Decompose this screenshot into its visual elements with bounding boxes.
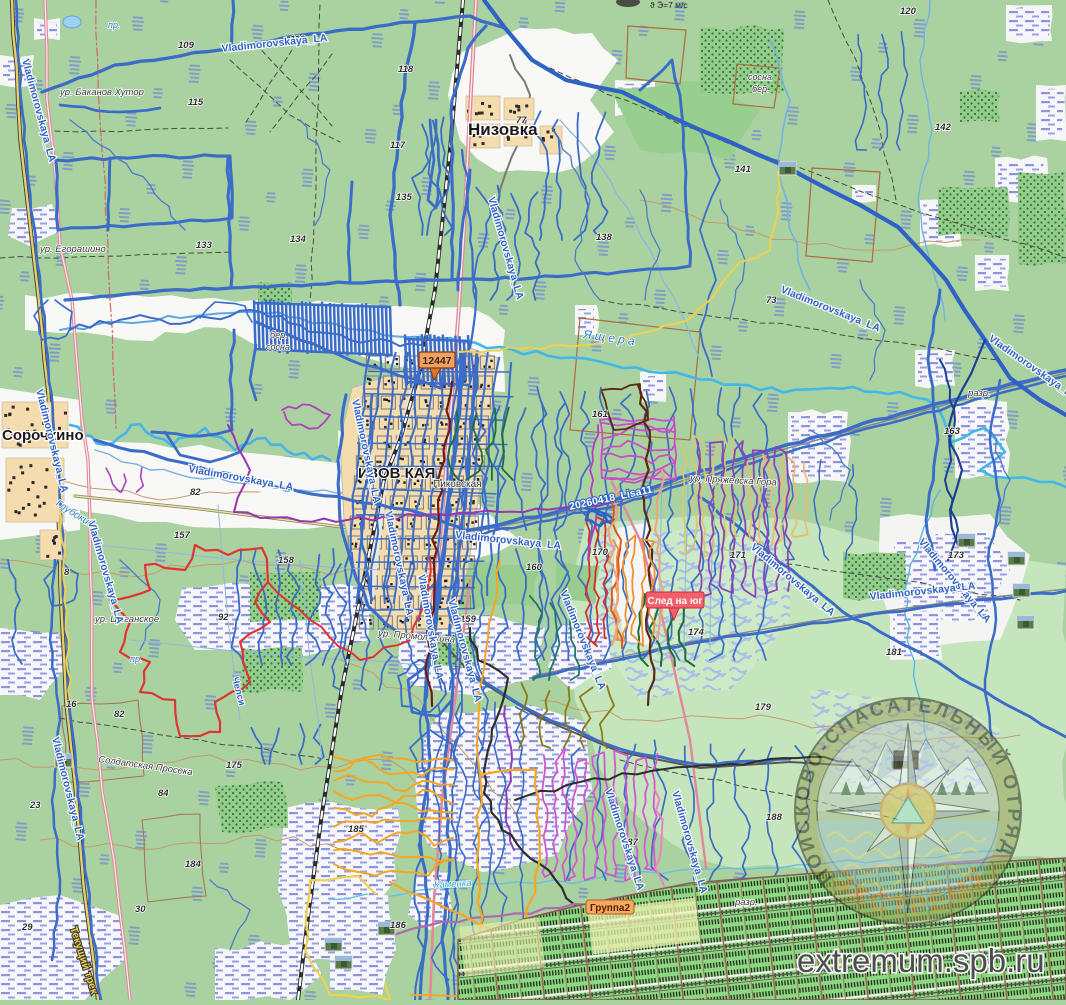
- svg-text:157: 157: [174, 530, 191, 541]
- svg-text:141: 141: [735, 164, 751, 175]
- svg-text:138: 138: [596, 232, 613, 243]
- svg-text:разр.: разр.: [734, 897, 758, 908]
- svg-text:175: 175: [226, 760, 243, 771]
- svg-text:Пиковская: Пиковская: [433, 479, 482, 490]
- svg-text:сосна: сосна: [748, 72, 772, 82]
- svg-text:пр.: пр.: [130, 654, 142, 664]
- svg-text:120: 120: [900, 6, 917, 17]
- svg-text:Каменка: Каменка: [434, 878, 472, 891]
- svg-text:Группа2: Группа2: [590, 903, 630, 914]
- svg-text:16: 16: [66, 699, 77, 710]
- svg-text:161: 161: [592, 409, 608, 420]
- svg-text:184: 184: [185, 859, 202, 870]
- svg-text:170: 170: [592, 547, 609, 558]
- svg-text:разр.: разр.: [967, 388, 991, 399]
- svg-text:92: 92: [218, 612, 229, 623]
- svg-text:пр.: пр.: [108, 20, 120, 30]
- svg-text:8: 8: [64, 567, 70, 578]
- svg-text:179: 179: [755, 702, 772, 713]
- svg-text:ур. Цыганское: ур. Цыганское: [94, 614, 159, 625]
- svg-text:След на юг: След на юг: [647, 596, 702, 607]
- svg-text:82: 82: [190, 487, 201, 498]
- svg-text:171: 171: [730, 550, 746, 561]
- svg-text:Низовка: Низовка: [468, 120, 538, 139]
- svg-text:ϑ Ӭ=7 м/с: ϑ Ӭ=7 м/с: [650, 0, 688, 10]
- svg-text:181: 181: [886, 647, 902, 658]
- svg-text:77: 77: [516, 115, 527, 126]
- svg-text:бер.: бер.: [270, 330, 288, 340]
- svg-text:ур. Егорашино: ур. Егорашино: [39, 244, 106, 255]
- svg-text:188: 188: [766, 812, 783, 823]
- svg-text:23: 23: [29, 800, 41, 811]
- svg-text:109: 109: [178, 40, 195, 51]
- svg-text:186: 186: [390, 920, 407, 931]
- svg-text:158: 158: [278, 555, 295, 566]
- svg-text:160: 160: [526, 562, 543, 573]
- svg-text:133: 133: [196, 240, 213, 251]
- svg-text:ур. Баканов Хутор: ур. Баканов Хутор: [59, 87, 144, 98]
- svg-text:142: 142: [935, 122, 952, 133]
- svg-text:117: 117: [390, 140, 406, 151]
- svg-text:84: 84: [158, 788, 169, 799]
- svg-text:115: 115: [188, 97, 204, 108]
- svg-text:сосна: сосна: [266, 342, 290, 352]
- svg-text:бер.: бер.: [752, 84, 770, 94]
- svg-text:163: 163: [944, 426, 961, 437]
- svg-text:185: 185: [348, 824, 365, 835]
- svg-text:118: 118: [398, 64, 414, 75]
- svg-text:173: 173: [948, 550, 965, 561]
- svg-text:134: 134: [290, 234, 307, 245]
- svg-text:82: 82: [114, 709, 125, 720]
- svg-text:30: 30: [135, 904, 146, 915]
- svg-text:135: 135: [396, 192, 413, 203]
- svg-text:extremum.spb.ru: extremum.spb.ru: [797, 942, 1045, 979]
- svg-text:174: 174: [688, 627, 705, 638]
- svg-text:29: 29: [21, 922, 33, 933]
- svg-text:73: 73: [766, 295, 777, 306]
- svg-text:12447: 12447: [422, 355, 451, 367]
